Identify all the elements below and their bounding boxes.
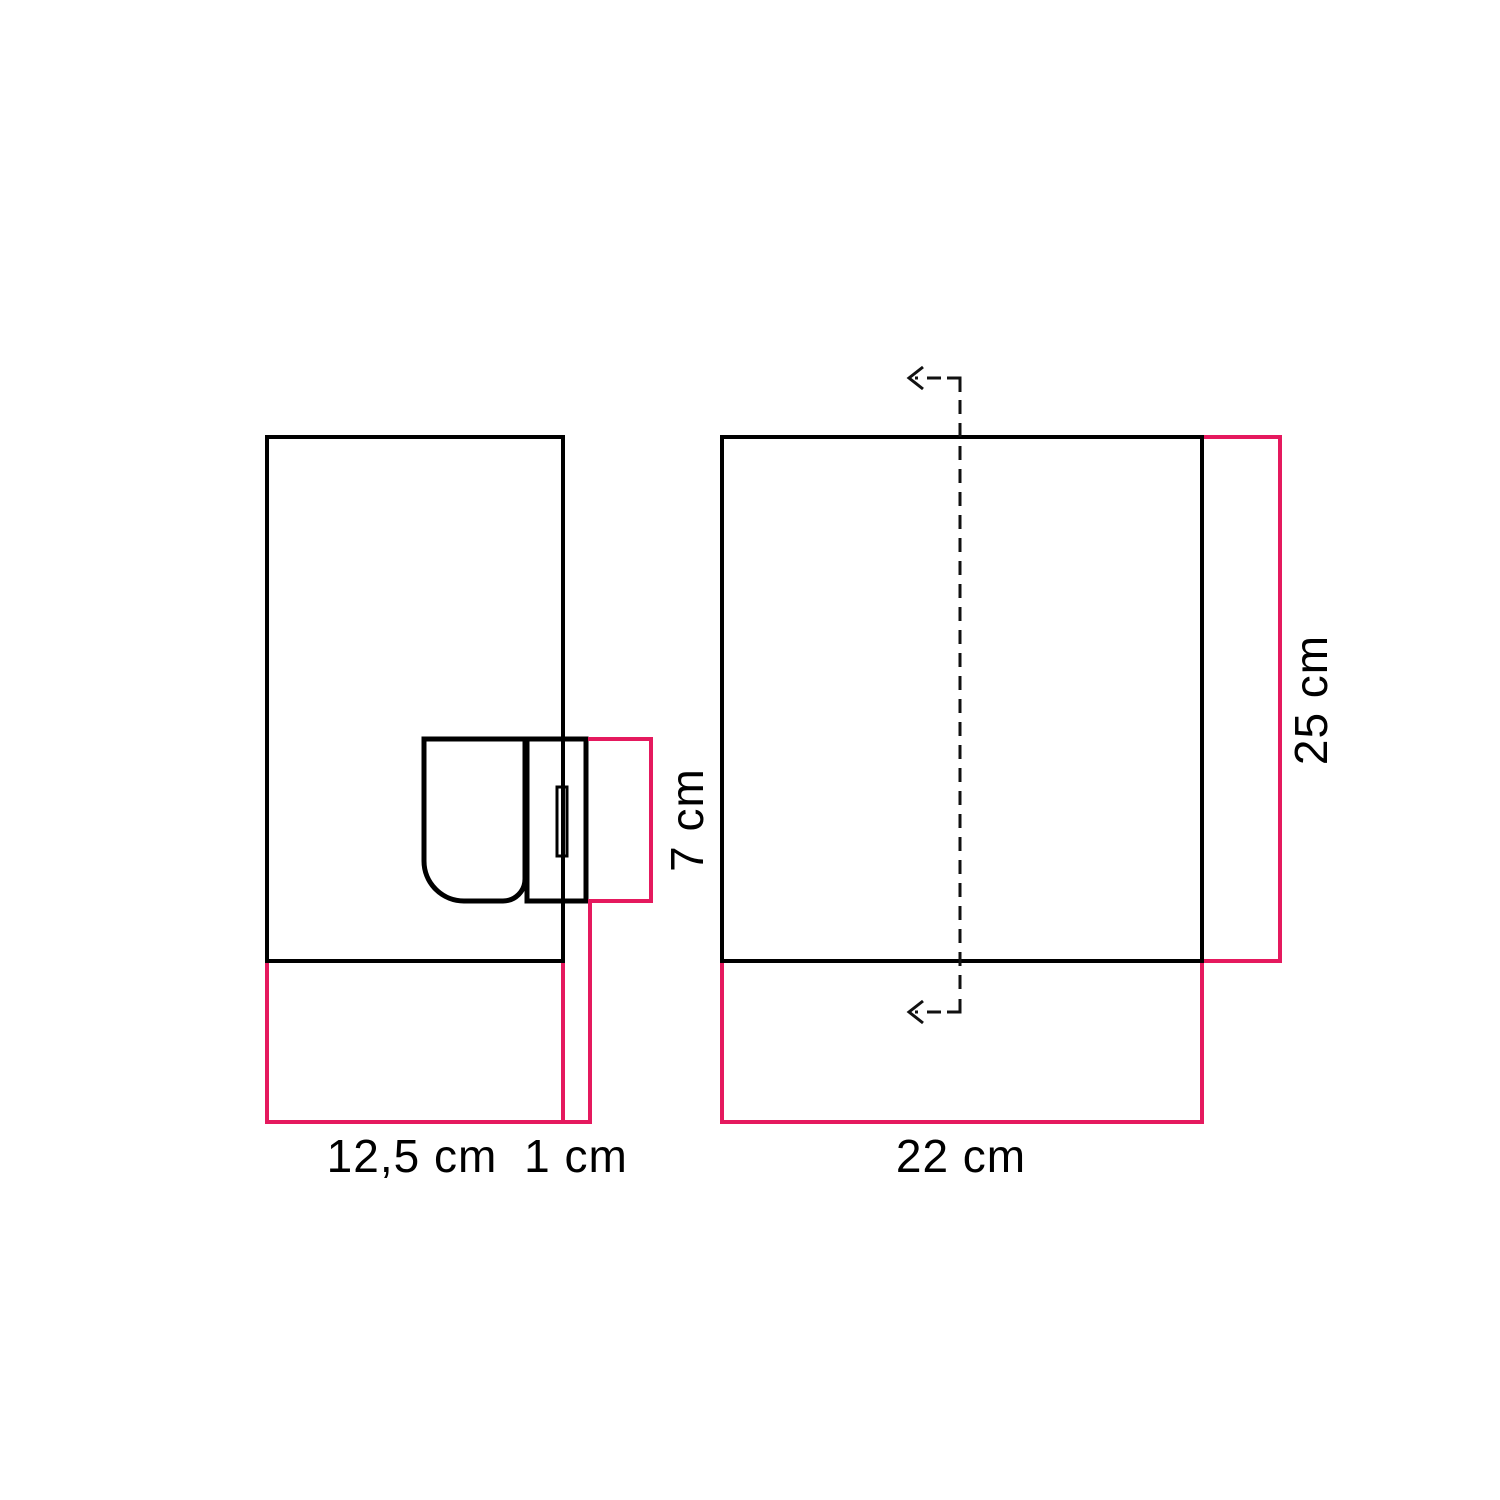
dim-bracket-7cm: [588, 739, 651, 901]
axis-elbow-top: [947, 378, 960, 392]
side-view-shade-outline: [267, 437, 563, 961]
dim-bracket-25cm: [1204, 437, 1280, 961]
side-view: 12,5 cm 1 cm 7 cm: [265, 437, 713, 1182]
dimension-diagram: 12,5 cm 1 cm 7 cm 22 cm 25 cm: [0, 0, 1500, 1500]
side-view-socket-cup: [424, 739, 525, 901]
dimension-diagram-canvas: 12,5 cm 1 cm 7 cm 22 cm 25 cm: [0, 0, 1500, 1500]
dim-label-shade-width: 12,5 cm: [327, 1130, 498, 1182]
dim-label-mount-height: 7 cm: [661, 768, 713, 872]
dim-label-front-width: 22 cm: [896, 1130, 1026, 1182]
front-view: 22 cm 25 cm: [720, 367, 1337, 1182]
front-view-shade-outline: [722, 437, 1202, 961]
axis-elbow-bottom: [947, 999, 960, 1012]
dim-label-front-height: 25 cm: [1285, 635, 1337, 765]
dim-label-mount-depth: 1 cm: [524, 1130, 628, 1182]
